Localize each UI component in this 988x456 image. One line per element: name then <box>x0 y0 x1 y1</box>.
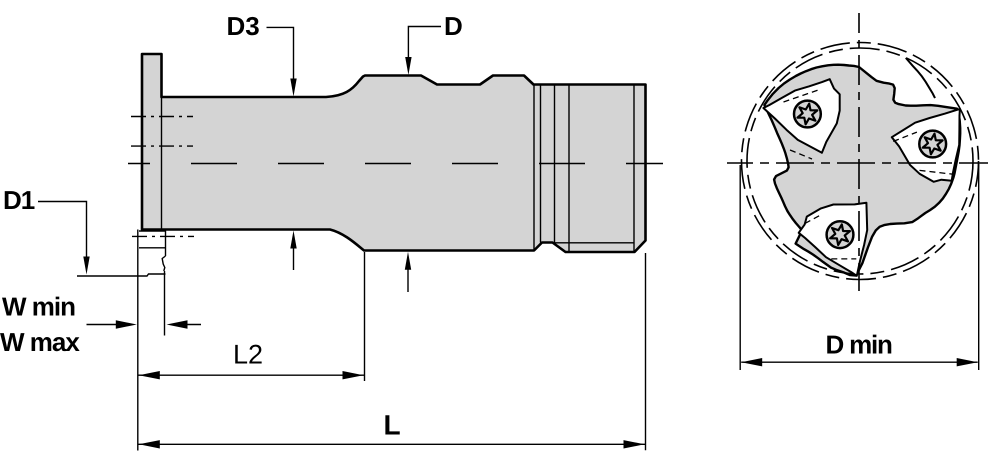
svg-text:D3: D3 <box>227 11 260 41</box>
svg-text:W max: W max <box>0 327 80 357</box>
svg-text:D min: D min <box>826 330 893 360</box>
svg-text:L2: L2 <box>233 340 263 370</box>
svg-text:W min: W min <box>2 292 75 322</box>
svg-text:D1: D1 <box>3 185 35 215</box>
svg-text:L: L <box>384 410 401 441</box>
svg-text:D: D <box>444 11 463 41</box>
